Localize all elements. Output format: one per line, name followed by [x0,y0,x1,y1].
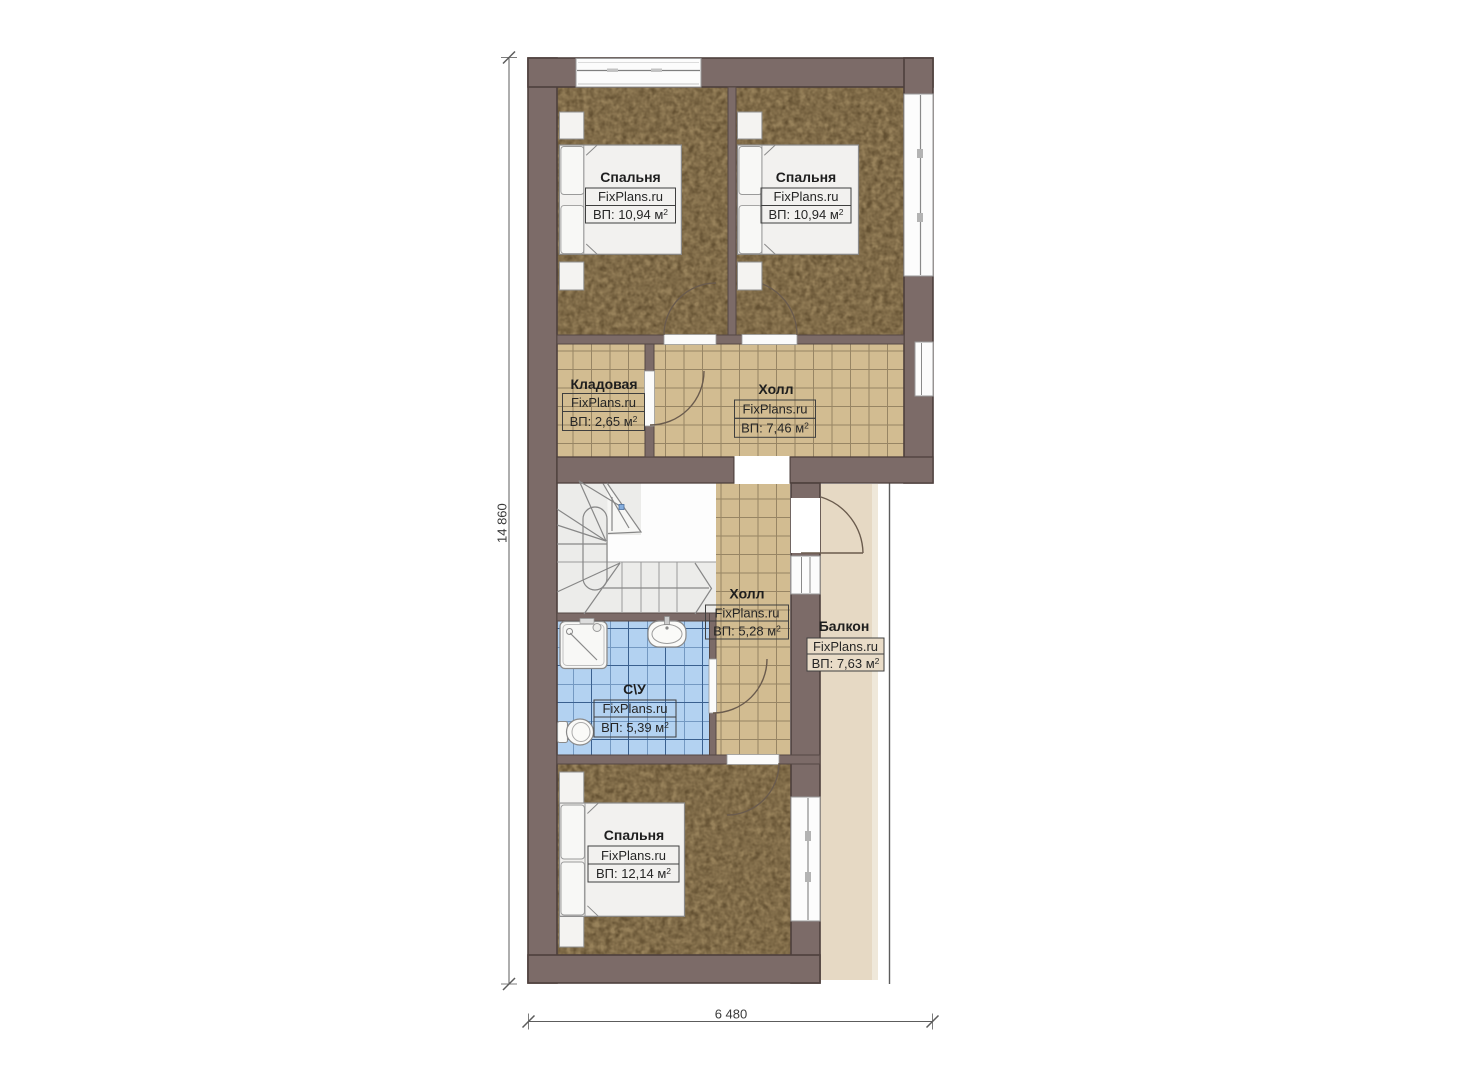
svg-text:6 480: 6 480 [715,1007,748,1022]
svg-text:FixPlans.ru: FixPlans.ru [602,701,667,716]
svg-text:FixPlans.ru: FixPlans.ru [742,402,807,417]
svg-text:ВП: 10,94 м2: ВП: 10,94 м2 [593,207,668,222]
svg-text:ВП: 2,65 м2: ВП: 2,65 м2 [570,414,638,429]
svg-text:С\У: С\У [623,681,646,697]
svg-text:Балкон: Балкон [819,618,870,634]
svg-text:ВП: 7,63 м2: ВП: 7,63 м2 [812,656,880,671]
svg-text:Спальня: Спальня [776,169,836,185]
svg-text:ВП: 10,94 м2: ВП: 10,94 м2 [768,207,843,222]
svg-text:Холл: Холл [729,586,764,602]
svg-text:ВП: 5,28 м2: ВП: 5,28 м2 [713,624,781,639]
svg-text:14 860: 14 860 [495,503,510,543]
svg-text:Холл: Холл [758,381,793,397]
svg-text:Спальня: Спальня [600,169,660,185]
svg-text:ВП: 12,14 м2: ВП: 12,14 м2 [596,866,671,881]
svg-text:FixPlans.ru: FixPlans.ru [598,189,663,204]
svg-text:FixPlans.ru: FixPlans.ru [571,395,636,410]
svg-text:FixPlans.ru: FixPlans.ru [714,606,779,621]
svg-text:Спальня: Спальня [604,827,664,843]
svg-text:Кладовая: Кладовая [570,376,637,392]
svg-text:ВП: 7,46 м2: ВП: 7,46 м2 [741,421,809,436]
svg-text:FixPlans.ru: FixPlans.ru [813,639,878,654]
svg-text:FixPlans.ru: FixPlans.ru [773,189,838,204]
svg-text:FixPlans.ru: FixPlans.ru [601,848,666,863]
svg-text:ВП: 5,39 м2: ВП: 5,39 м2 [601,720,669,735]
